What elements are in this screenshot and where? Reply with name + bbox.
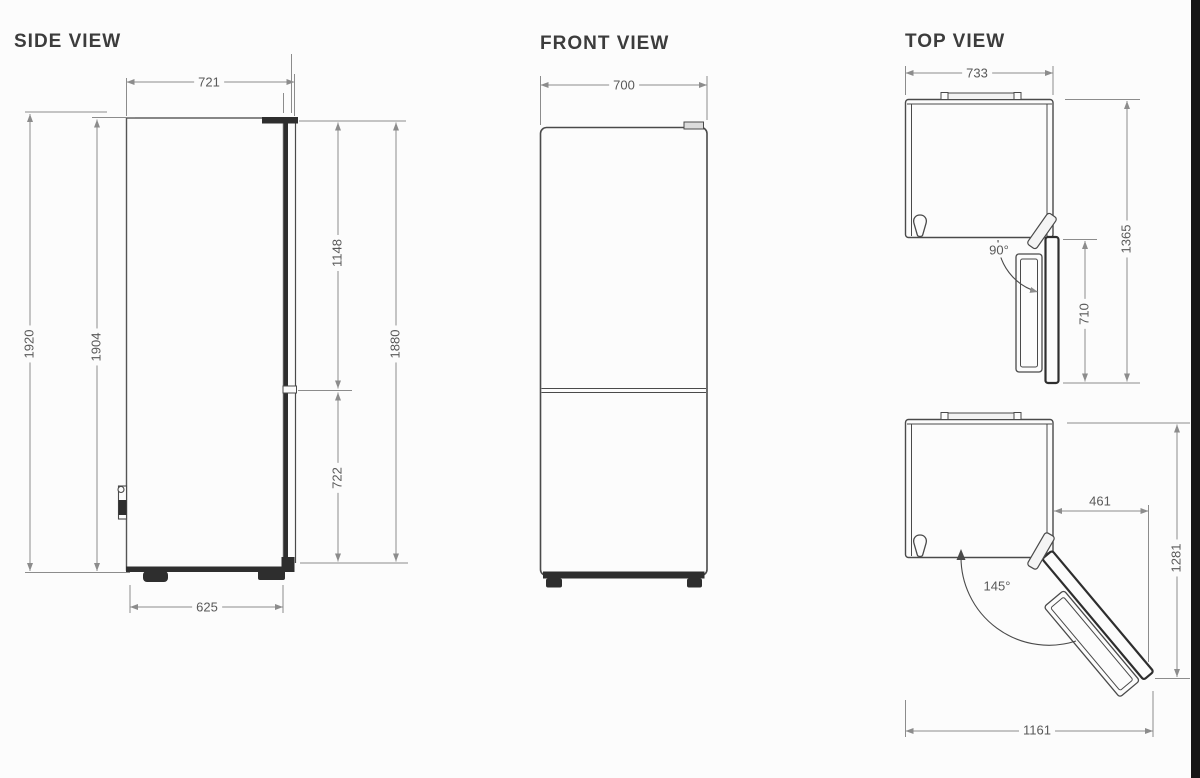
top-view-145-drawing [906, 413, 1191, 738]
front-base-bar [543, 572, 705, 579]
side-rear-wheel [143, 571, 168, 582]
front-cabinet-body [541, 128, 708, 576]
dim-label-90deg: 90° [985, 243, 1013, 258]
top-view-90-drawing [906, 66, 1141, 383]
dim-label-721: 721 [194, 75, 224, 90]
dim-label-1148: 1148 [330, 235, 345, 271]
dim-label-461: 461 [1085, 494, 1115, 509]
dim-label-1904: 1904 [89, 329, 104, 366]
side-view-title: SIDE VIEW [14, 31, 121, 53]
dim-label-700: 700 [609, 78, 639, 93]
side-door-divider [283, 386, 297, 393]
dim-label-710: 710 [1077, 299, 1092, 329]
front-hinge-cap [684, 122, 704, 129]
top-view-title: TOP VIEW [905, 31, 1005, 53]
front-right-foot [687, 579, 702, 588]
top-145-cabinet [906, 413, 1054, 558]
drawing-linework [0, 0, 1200, 778]
front-view-drawing [541, 76, 708, 588]
dim-label-625: 625 [192, 600, 222, 615]
technical-drawing-page: SIDE VIEW FRONT VIEW TOP VIEW 721 1920 1… [0, 0, 1200, 778]
dim-label-733: 733 [962, 66, 992, 81]
screenshot-right-edge [1191, 0, 1200, 778]
dim-label-1920: 1920 [22, 326, 37, 363]
top-145-door [1019, 551, 1153, 699]
dim-label-1365: 1365 [1119, 221, 1134, 258]
dim-label-722: 722 [330, 463, 345, 493]
side-door-top-cap [262, 117, 298, 124]
dim-label-1880: 1880 [388, 326, 403, 363]
dim-label-145deg: 145° [980, 579, 1015, 594]
side-rear-hinge-bracket [118, 486, 127, 519]
top-90-door [1016, 237, 1059, 383]
side-cabinet-body [127, 118, 284, 570]
side-view-drawing [25, 54, 408, 613]
front-view-title: FRONT VIEW [540, 33, 669, 55]
top-90-cabinet [906, 93, 1054, 238]
front-left-foot [546, 579, 562, 588]
dim-label-1161: 1161 [1019, 723, 1055, 738]
side-front-foot [258, 568, 285, 580]
dim-label-1281: 1281 [1169, 540, 1184, 577]
